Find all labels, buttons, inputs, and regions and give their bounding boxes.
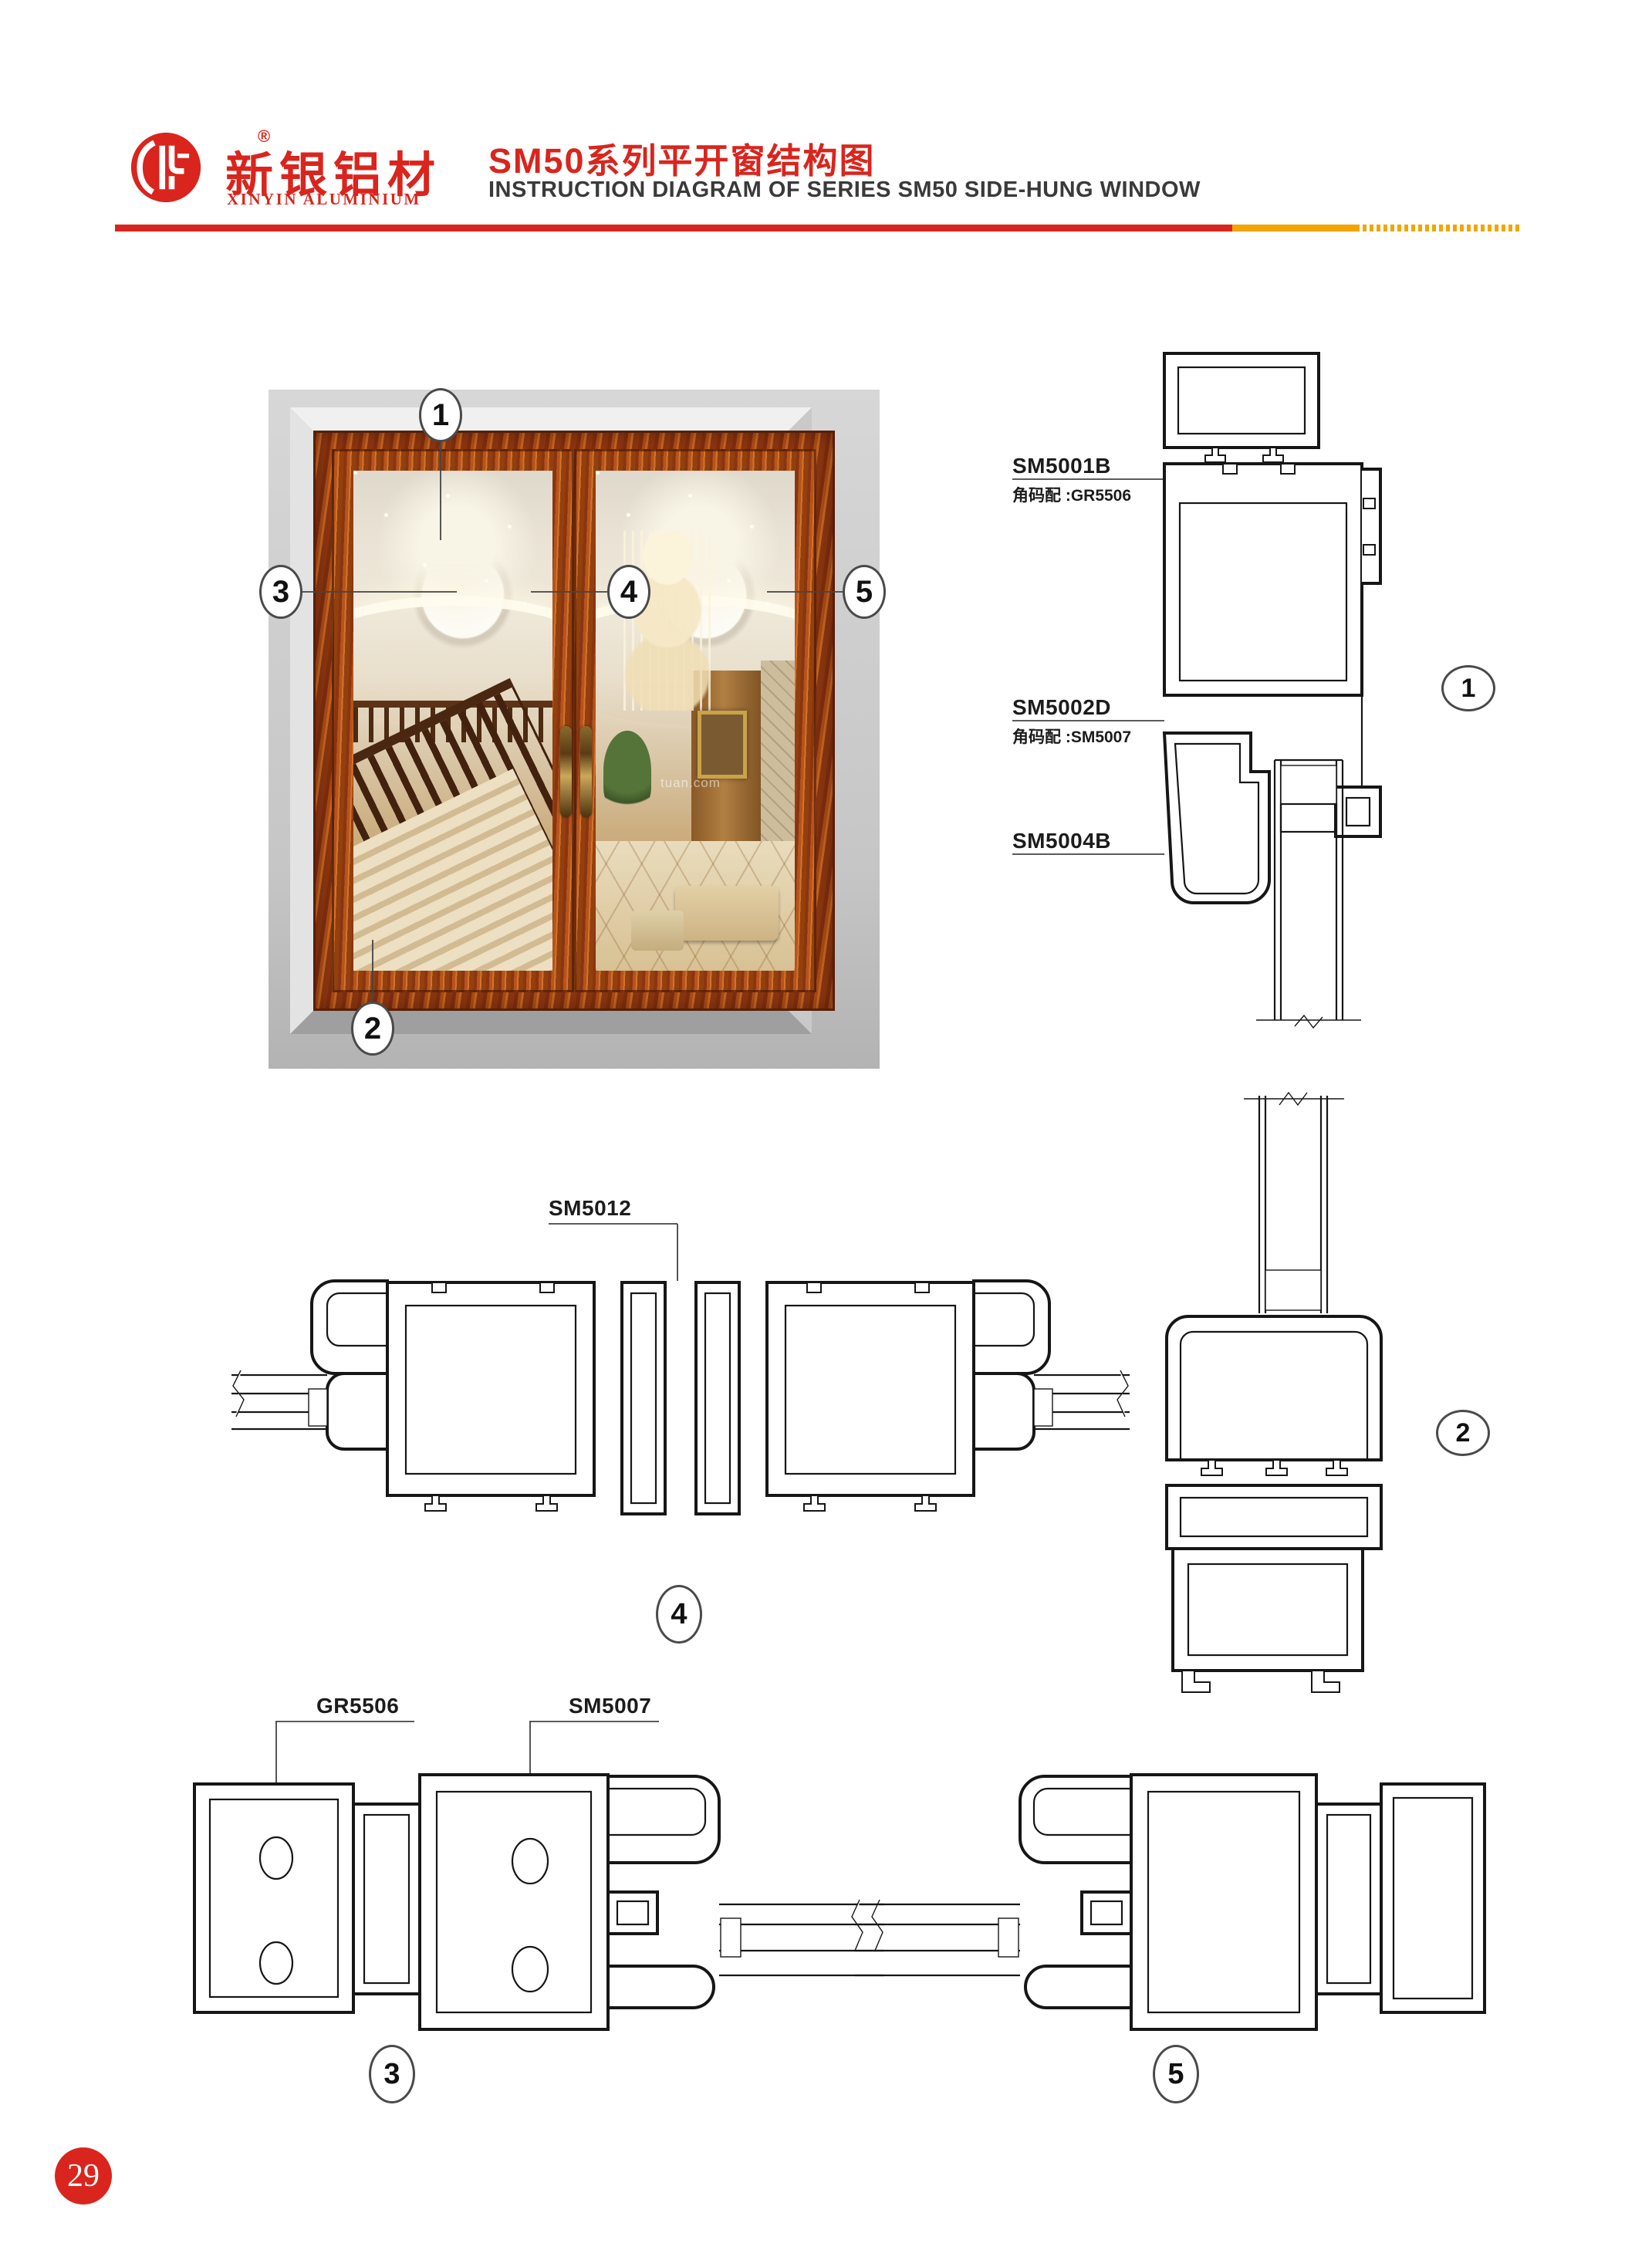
sofa [675,886,779,941]
section-marker-3: 3 [369,2045,415,2103]
label-sm5002d-note: 角码配 :SM5007 [1012,725,1131,748]
section-drawing-5 [852,1775,1485,2029]
label-sm5004b: SM5004B [1012,829,1111,853]
left-sash [332,449,574,992]
catalog-page: ® 新银铝材 XINYIN ALUMINIUM SM50系列平开窗结构图 INS… [0,0,1652,2257]
profile-drawings [0,0,1652,2257]
callout-5: 5 [843,565,886,619]
callout-1: 1 [419,388,462,442]
left-sash-handle [560,726,572,817]
label-sm5001b-note: 角码配 :GR5506 [1012,483,1131,506]
company-logo-icon [130,131,202,204]
page-number-badge: 29 [55,2147,112,2205]
section-drawing-4 [231,1281,1130,1514]
window-frame [313,431,835,1011]
ottoman [631,911,683,951]
section-drawing-1 [1164,353,1380,1028]
section-marker-5: 5 [1153,2045,1199,2103]
label-gr5506: GR5506 [316,1694,399,1718]
plant [603,731,651,811]
label-sm5001b: SM5001B [1012,454,1111,478]
label-sm5012: SM5012 [549,1196,631,1221]
wall-painting [698,711,747,779]
right-sash-handle [580,726,592,817]
chandelier [623,531,711,711]
label-sm5002d: SM5002D [1012,695,1111,720]
section-marker-1: 1 [1441,665,1495,711]
header-rule-amber [1232,225,1356,231]
label-sm5007: SM5007 [569,1694,651,1718]
ceiling-lights [353,471,357,475]
photo-watermark: tuan.com [660,775,721,791]
right-sash-glass [596,471,795,971]
section-marker-2: 2 [1436,1410,1490,1456]
callout-2: 2 [351,1002,394,1056]
left-sash-glass [353,471,552,971]
section-drawing-2 [1167,1093,1381,1692]
callout-4: 4 [607,565,650,619]
logo-english-name: XINYIN ALUMINIUM [227,190,421,209]
header-rule-dashed [1356,225,1519,231]
page-subtitle: INSTRUCTION DIAGRAM OF SERIES SM50 SIDE-… [488,177,1201,203]
page-title: SM50系列平开窗结构图 [488,133,876,183]
ceiling-lights [596,471,600,475]
header-rule-red [115,225,1232,231]
section-marker-4: 4 [656,1585,702,1644]
right-sash [574,449,816,992]
callout-3: 3 [259,565,302,619]
section-drawing-3 [194,1775,884,2029]
window-photo: tuan.com [269,390,880,1069]
